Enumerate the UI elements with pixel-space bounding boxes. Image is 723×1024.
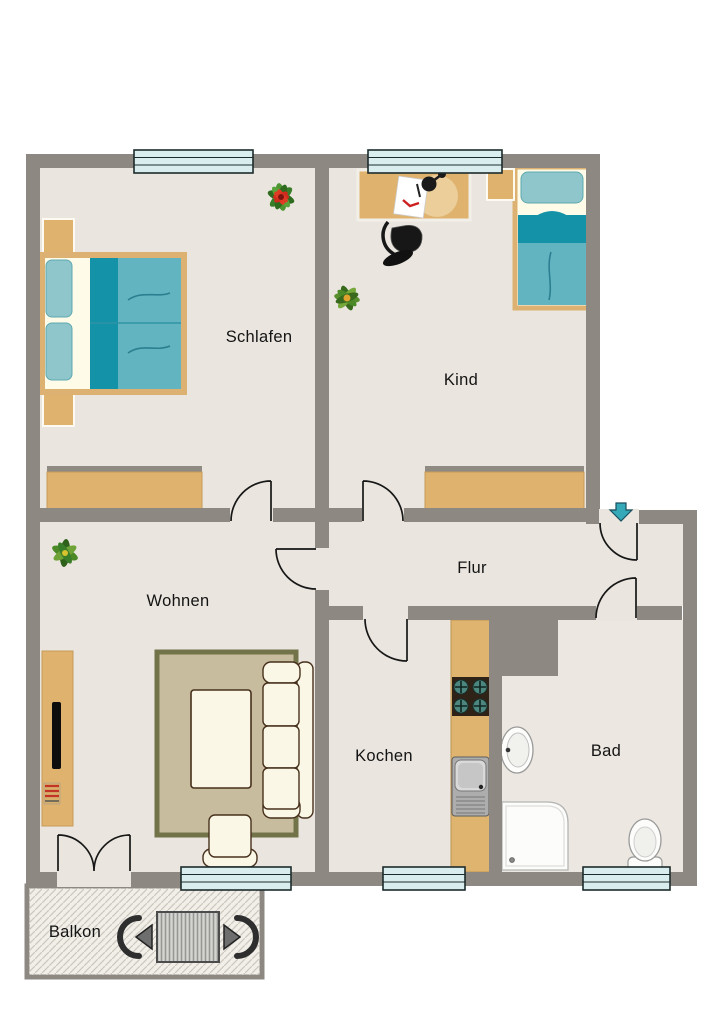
sofa-cushion [263, 683, 299, 726]
media-stack [44, 783, 60, 804]
window-frame [134, 150, 253, 173]
sofa-3-seat [263, 662, 313, 818]
pillow [46, 260, 72, 317]
wardrobe [47, 466, 202, 512]
chair-seat [391, 225, 422, 253]
nightstand [43, 219, 74, 254]
single-bed [515, 167, 589, 308]
gap-kochen-door [363, 605, 408, 621]
window-frame [383, 867, 465, 890]
label-kochen: Kochen [355, 747, 413, 765]
faucet [479, 785, 483, 789]
label-wohnen: Wohnen [147, 592, 210, 610]
kitchen-counter [451, 620, 490, 872]
sink-basin-inner [458, 763, 483, 788]
nightstand [43, 391, 74, 426]
wall-right [683, 510, 697, 886]
pillow [46, 323, 72, 380]
wardrobe-body [47, 472, 202, 512]
window-kochen [383, 867, 465, 890]
tv [52, 702, 61, 769]
floor-entry-nook [638, 524, 683, 606]
armchair [203, 815, 257, 867]
wall-top [26, 154, 600, 168]
sofa-armrest [263, 662, 300, 683]
coffee-table [191, 690, 251, 788]
label-bad: Bad [591, 742, 621, 760]
floor-flur [329, 522, 683, 606]
kitchen-sink [452, 757, 489, 816]
wall-bad-notch [489, 606, 558, 676]
window-schlafen [134, 150, 253, 173]
sofa-cushion [263, 768, 299, 809]
wall-kind-right [586, 154, 600, 524]
wall-kochen-bad-divider [489, 676, 502, 872]
armchair-seat [209, 815, 251, 857]
gap-wohnen-door [314, 548, 330, 590]
toilet [628, 819, 662, 872]
floor-plan-drawing: Schlafen Kind Wohnen Flur Kochen Bad Bal… [0, 0, 723, 1024]
window-kind [368, 150, 502, 173]
gap-bad-door [596, 605, 637, 621]
sofa-cushion [263, 726, 299, 768]
wardrobe-body [425, 472, 584, 511]
window-frame [583, 867, 670, 890]
gap-balcony-door [57, 871, 131, 887]
window-bad [583, 867, 670, 890]
shower [502, 802, 568, 870]
gap-schlafen-door [230, 507, 273, 523]
window-frame [368, 150, 502, 173]
label-flur: Flur [457, 559, 487, 577]
wardrobe [425, 466, 584, 511]
pillow [521, 172, 583, 203]
label-balkon: Balkon [49, 923, 101, 941]
label-kind: Kind [444, 371, 478, 389]
floor-plan: Schlafen Kind Wohnen Flur Kochen Bad Bal… [0, 0, 723, 1024]
faucet [506, 748, 511, 753]
room-kochen-furniture [451, 620, 490, 872]
gap-kind-door [362, 507, 404, 523]
flower-center [278, 194, 284, 200]
desk-lamp [422, 177, 437, 192]
window-wohnen [181, 867, 291, 890]
shower-drain [510, 858, 515, 863]
label-schlafen: Schlafen [226, 328, 293, 346]
window-frame [181, 867, 291, 890]
plant-center [344, 295, 351, 302]
stove [452, 677, 489, 716]
blanket [518, 243, 586, 305]
wall-schlafen-kind-divider [315, 168, 329, 508]
blanket-fold [518, 215, 586, 243]
plant-center [62, 550, 68, 556]
toilet-bowl-inner [634, 827, 656, 857]
desk [358, 170, 470, 220]
double-bed [42, 255, 184, 392]
patio-table [157, 912, 219, 962]
wall-mid-horizontal [26, 508, 600, 522]
